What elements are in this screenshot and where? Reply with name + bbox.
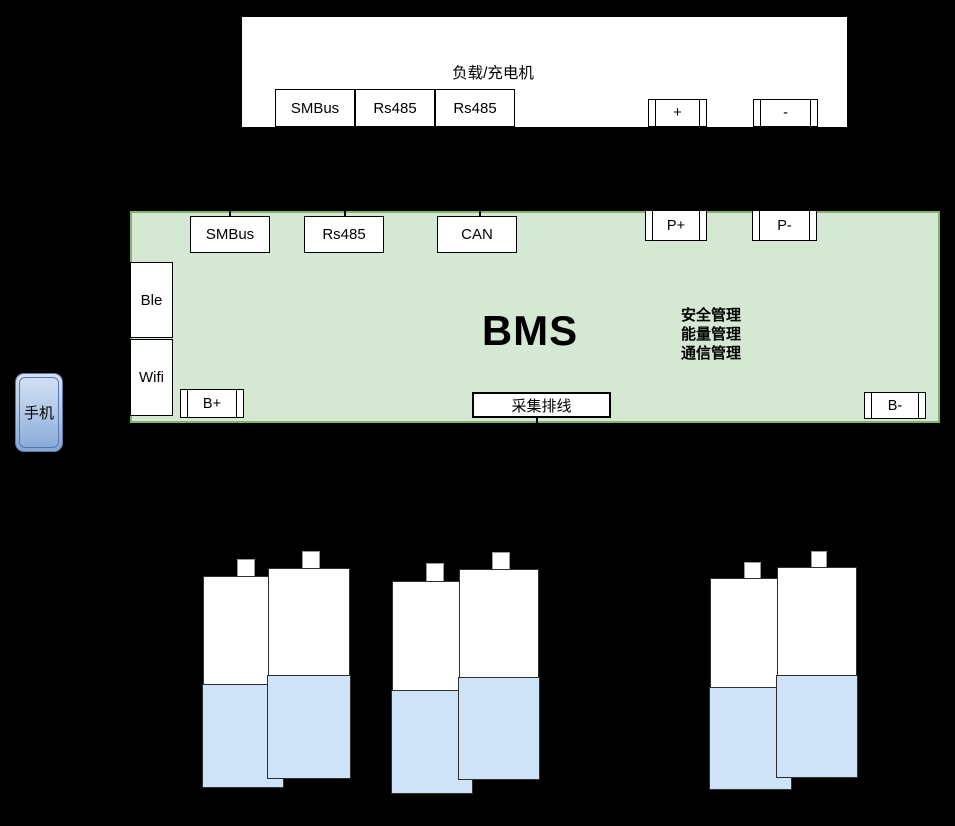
battery-terminal xyxy=(426,563,444,583)
bms-port-rs485-label: Rs485 xyxy=(322,226,365,243)
phone: 手机 xyxy=(15,373,63,452)
bms-function-comm: 通信管理 xyxy=(681,344,841,363)
bms-port-smbus: SMBus xyxy=(190,216,270,253)
bms-function-energy: 能量管理 xyxy=(681,325,841,344)
bms-title: BMS xyxy=(430,307,630,355)
bms-port-can-label: CAN xyxy=(461,226,493,243)
battery-cell xyxy=(268,568,350,778)
bms-port-harness-label: 采集排线 xyxy=(511,395,571,416)
phone-label: 手机 xyxy=(24,402,54,423)
charger-port-smbus: SMBus xyxy=(275,89,355,127)
bms-port-rs485: Rs485 xyxy=(304,216,384,253)
battery-charge-level xyxy=(776,675,857,778)
bms-port-harness: 采集排线 xyxy=(472,392,611,418)
battery-charge-level xyxy=(267,675,350,779)
charger-title: 负载/充电机 xyxy=(413,64,573,84)
charger-terminal-plus: + xyxy=(648,99,707,127)
charger-port-rs485-1-label: Rs485 xyxy=(373,100,416,117)
bms-port-b-plus-label: B+ xyxy=(203,396,221,412)
bms-functions: 安全管理 能量管理 通信管理 xyxy=(681,306,841,363)
charger-terminal-minus-label: - xyxy=(783,105,788,121)
bms-port-p-minus: P- xyxy=(752,210,817,241)
battery-cell xyxy=(777,567,857,777)
bms-port-wifi: Wifi xyxy=(130,339,173,416)
battery-cell xyxy=(459,569,539,779)
bms-port-p-minus-label: P- xyxy=(777,218,792,234)
bms-function-safety: 安全管理 xyxy=(681,306,841,325)
charger-port-rs485-2-label: Rs485 xyxy=(453,100,496,117)
battery-charge-level xyxy=(458,677,539,780)
bms-port-wifi-label: Wifi xyxy=(139,369,164,386)
charger-port-rs485-2: Rs485 xyxy=(435,89,515,127)
bms-architecture-diagram: 负载/充电机 SMBus Rs485 Rs485 + - 手机 SMBus xyxy=(0,0,955,826)
charger-port-smbus-label: SMBus xyxy=(291,100,339,117)
charger-terminal-plus-label: + xyxy=(673,105,681,121)
charger-box: 负载/充电机 SMBus Rs485 Rs485 + - xyxy=(240,15,849,129)
bms-port-p-plus-label: P+ xyxy=(667,218,685,234)
bms-port-b-minus-label: B- xyxy=(888,398,903,414)
bms-port-p-plus: P+ xyxy=(645,210,707,241)
charger-terminal-minus: - xyxy=(753,99,818,127)
bms-port-ble-label: Ble xyxy=(141,292,163,309)
bms-port-can: CAN xyxy=(437,216,517,253)
bms-port-smbus-label: SMBus xyxy=(206,226,254,243)
bms-port-ble: Ble xyxy=(130,262,173,338)
bms-port-b-minus: B- xyxy=(864,392,926,419)
charger-port-rs485-1: Rs485 xyxy=(355,89,435,127)
bms-port-b-plus: B+ xyxy=(180,389,244,418)
bms-board: SMBus Rs485 CAN P+ P- Ble Wifi B+ 采集排线 xyxy=(130,211,940,423)
